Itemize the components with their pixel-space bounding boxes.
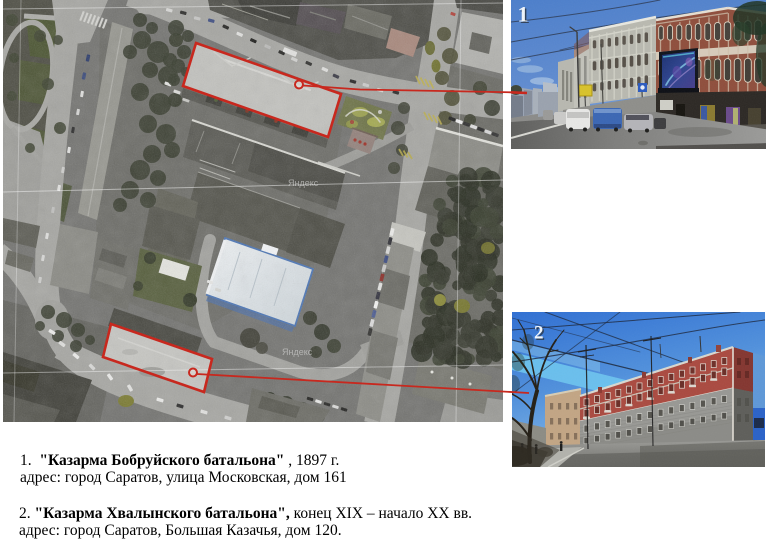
svg-text:2: 2 <box>534 323 544 344</box>
svg-text:1: 1 <box>518 2 529 27</box>
